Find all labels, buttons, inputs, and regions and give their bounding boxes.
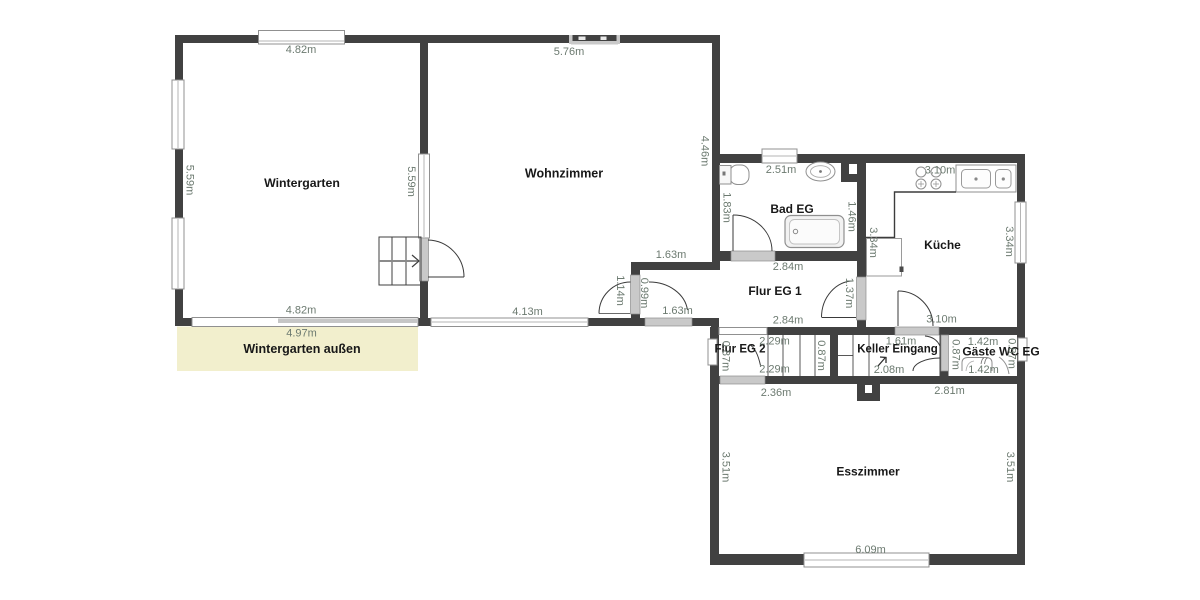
- svg-text:3.10m: 3.10m: [926, 314, 957, 326]
- svg-text:2.84m: 2.84m: [773, 315, 804, 327]
- svg-text:2.29m: 2.29m: [759, 336, 790, 348]
- svg-text:1.42m: 1.42m: [968, 364, 999, 376]
- svg-text:4.97m: 4.97m: [286, 328, 317, 340]
- svg-text:0.87m: 0.87m: [720, 341, 732, 372]
- svg-text:4.46m: 4.46m: [699, 136, 711, 167]
- svg-text:Küche: Küche: [924, 238, 961, 252]
- svg-text:0.87m: 0.87m: [815, 340, 827, 371]
- svg-text:2.51m: 2.51m: [766, 164, 797, 176]
- svg-text:3.34m: 3.34m: [1003, 226, 1015, 257]
- svg-text:2.81m: 2.81m: [934, 385, 965, 397]
- svg-text:6.09m: 6.09m: [855, 544, 886, 556]
- svg-text:0.87m: 0.87m: [1006, 338, 1018, 369]
- svg-text:1.42m: 1.42m: [968, 336, 999, 348]
- svg-text:3.34m: 3.34m: [867, 227, 879, 258]
- svg-text:Esszimmer: Esszimmer: [836, 465, 900, 479]
- svg-text:Bad EG: Bad EG: [770, 202, 813, 216]
- svg-text:0.87m: 0.87m: [950, 339, 962, 370]
- svg-text:3.51m: 3.51m: [1004, 452, 1016, 483]
- svg-text:Flur EG 1: Flur EG 1: [748, 284, 802, 298]
- svg-text:Wintergarten außen: Wintergarten außen: [243, 342, 360, 356]
- svg-text:1.37m: 1.37m: [843, 278, 855, 309]
- svg-text:1.83m: 1.83m: [721, 192, 733, 223]
- svg-text:4.13m: 4.13m: [512, 306, 543, 318]
- svg-text:2.36m: 2.36m: [761, 387, 792, 399]
- svg-text:0.99m: 0.99m: [638, 278, 650, 309]
- svg-text:2.29m: 2.29m: [759, 364, 790, 376]
- svg-text:5.59m: 5.59m: [405, 166, 417, 197]
- svg-text:1.46m: 1.46m: [846, 201, 858, 232]
- svg-text:3.51m: 3.51m: [720, 452, 732, 483]
- svg-text:2.08m: 2.08m: [874, 364, 905, 376]
- svg-text:1.14m: 1.14m: [614, 275, 626, 306]
- svg-text:1.63m: 1.63m: [656, 249, 687, 261]
- svg-text:2.84m: 2.84m: [773, 261, 804, 273]
- svg-text:Wintergarten: Wintergarten: [264, 176, 340, 190]
- svg-text:1.63m: 1.63m: [662, 305, 693, 317]
- svg-text:5.59m: 5.59m: [184, 165, 196, 196]
- svg-text:1.61m: 1.61m: [886, 336, 917, 348]
- svg-text:4.82m: 4.82m: [286, 44, 317, 56]
- svg-text:3.10m: 3.10m: [925, 165, 956, 177]
- svg-text:5.76m: 5.76m: [554, 46, 585, 58]
- svg-text:4.82m: 4.82m: [286, 305, 317, 317]
- svg-text:Wohnzimmer: Wohnzimmer: [525, 167, 603, 181]
